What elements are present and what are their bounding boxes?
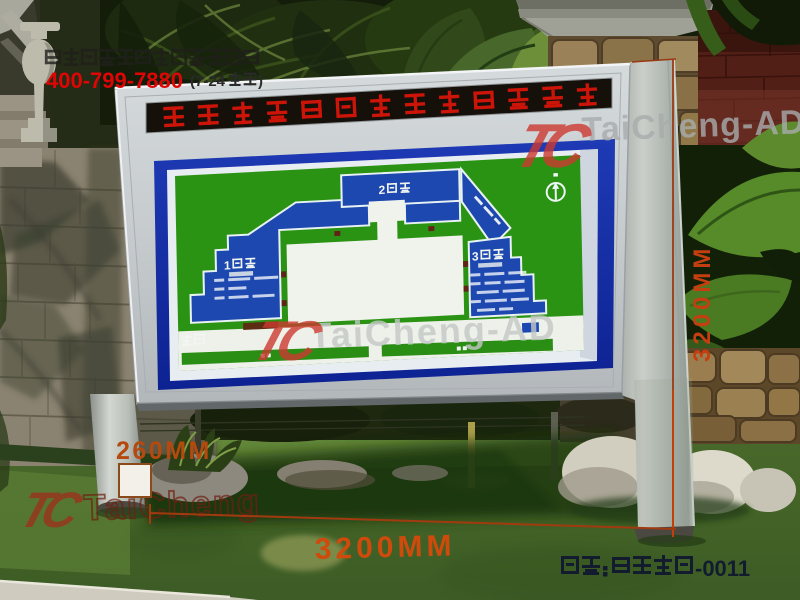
svg-text:3200MM: 3200MM [314, 529, 456, 566]
svg-text:TaiCheng-AD: TaiCheng-AD [581, 103, 800, 149]
svg-text:TaiCheng: TaiCheng [83, 481, 262, 528]
svg-text:3: 3 [472, 249, 479, 263]
svg-text:400-799-7880: 400-799-7880 [46, 68, 183, 93]
svg-text:): ) [258, 73, 263, 90]
svg-text:3200MM: 3200MM [689, 245, 716, 362]
svg-text:2: 2 [378, 183, 385, 197]
svg-text:1: 1 [224, 258, 231, 272]
svg-text:TaiCheng-AD: TaiCheng-AD [309, 306, 558, 356]
svg-text:-0011: -0011 [695, 556, 750, 581]
svg-text:(7-24: (7-24 [190, 73, 226, 90]
svg-text:260MM: 260MM [116, 437, 212, 465]
